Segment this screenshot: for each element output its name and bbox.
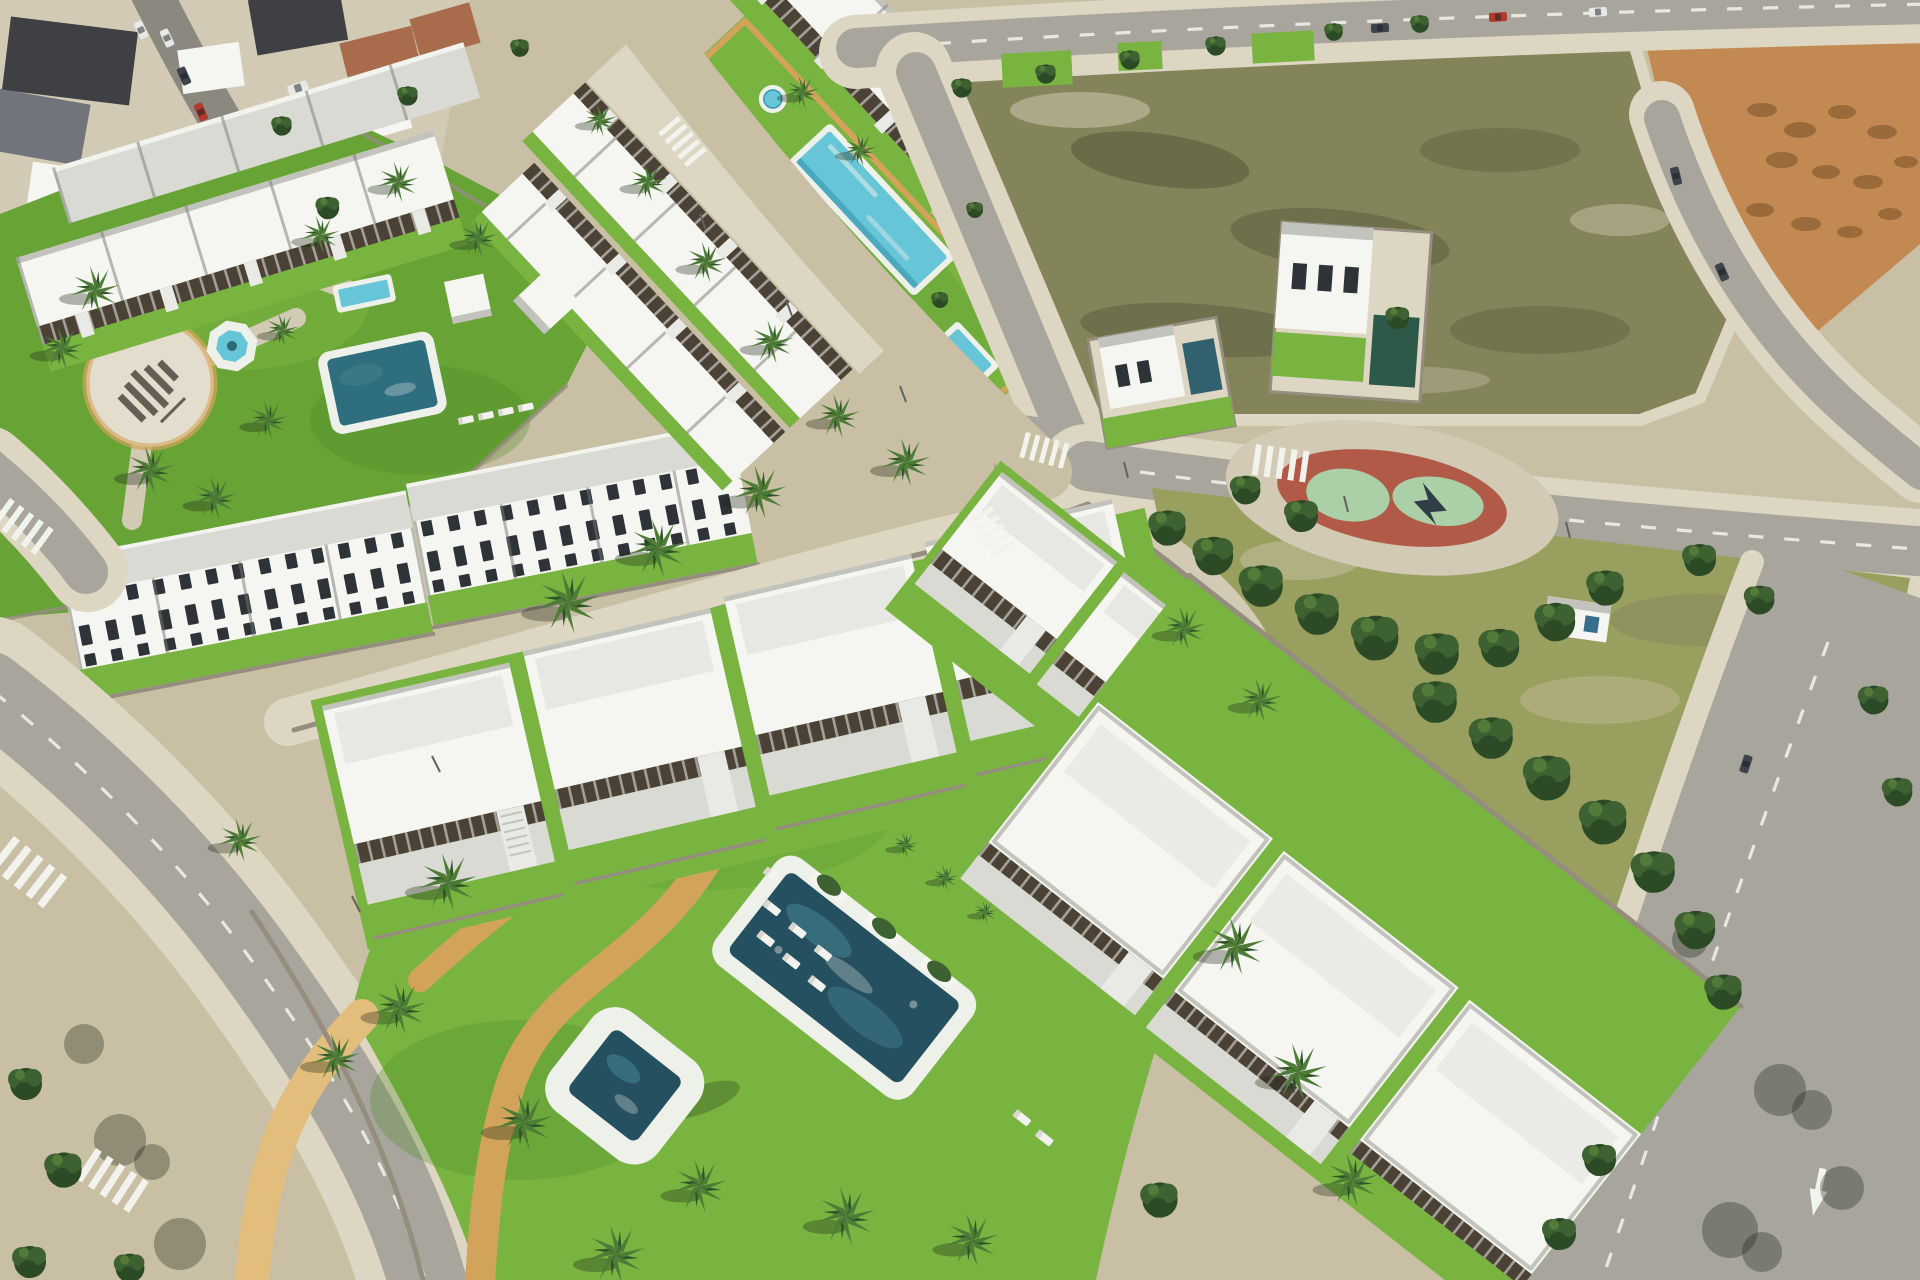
aerial-development-render <box>0 0 1920 1280</box>
villa-1 <box>1088 317 1235 448</box>
